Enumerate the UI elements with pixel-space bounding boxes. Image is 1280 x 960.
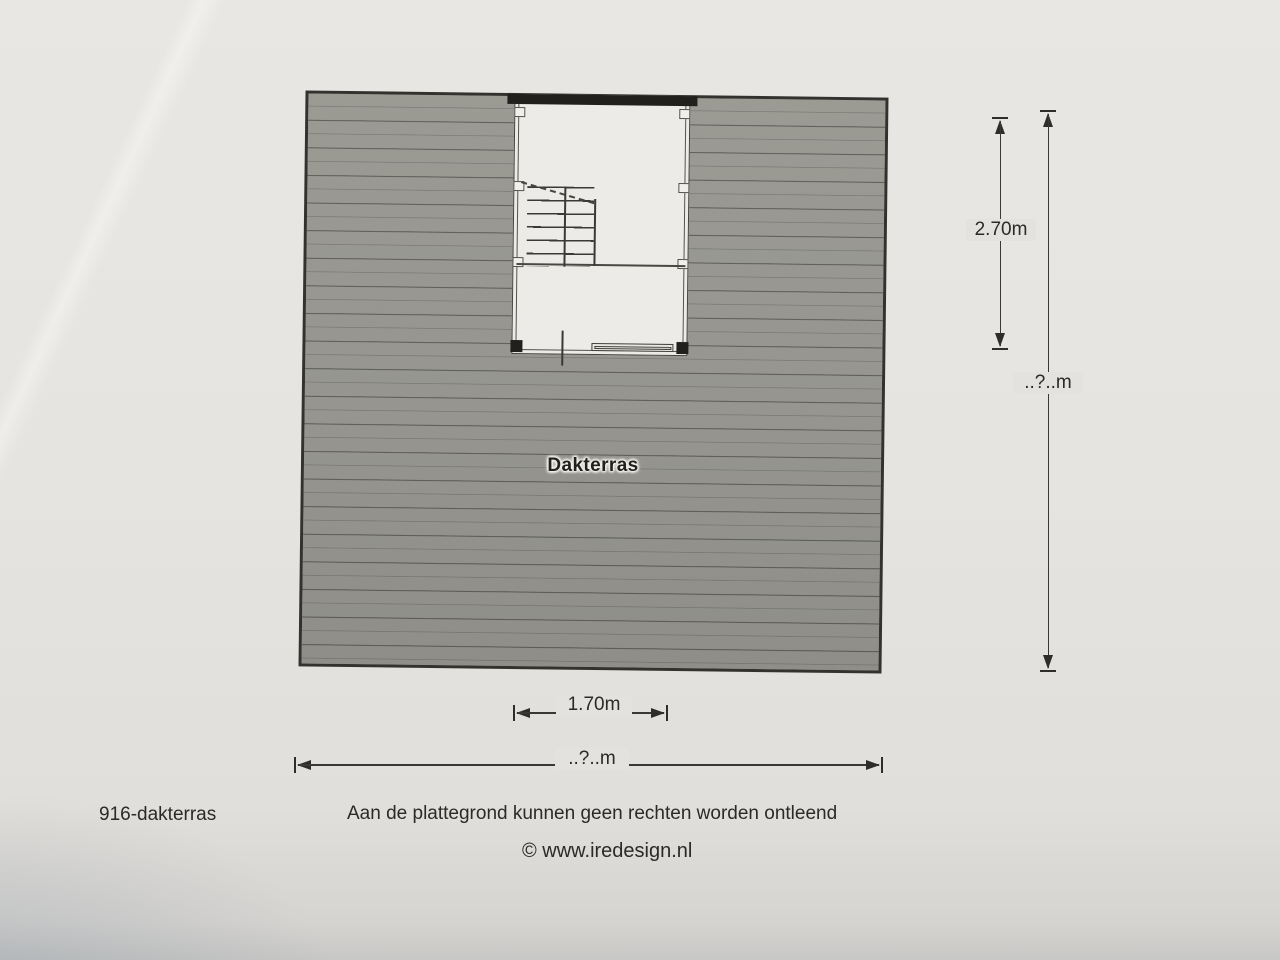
scanned-floorplan-page: Dakterras 2.70m ..?..m 1.70m ..?..m 916-… <box>0 0 1280 960</box>
staircase-treads <box>526 186 594 267</box>
dimension-value-terrace-width: ..?..m <box>555 748 629 770</box>
dimension-value-opening-width: 1.70m <box>556 694 632 716</box>
dimension-end-tick <box>294 757 296 773</box>
dimension-end-tick <box>513 705 515 721</box>
stairwell-opening <box>511 94 690 356</box>
wall-corner-block <box>510 340 522 352</box>
roof-terrace-deck <box>299 90 889 673</box>
entry-tick-mark <box>561 331 563 366</box>
dimension-value-terrace-depth: ..?..m <box>1013 372 1083 394</box>
wall-corner-block <box>676 342 688 354</box>
arrow-right-icon <box>651 708 665 718</box>
bottom-railing-segment <box>591 343 673 352</box>
bottom-railing-inner-line <box>594 346 671 350</box>
railing-post <box>679 109 690 119</box>
dimension-value-opening-depth: 2.70m <box>966 219 1036 241</box>
drawing-id: 916-dakterras <box>99 804 216 826</box>
disclaimer-text: Aan de plattegrond kunnen geen rechten w… <box>347 803 837 825</box>
railing-post <box>514 107 525 117</box>
railing-post <box>678 183 689 193</box>
dimension-end-tick <box>1040 670 1056 672</box>
arrow-right-icon <box>866 760 880 770</box>
arrow-down-icon <box>1043 655 1053 669</box>
dimension-end-tick <box>1040 110 1056 112</box>
dimension-end-tick <box>666 705 668 721</box>
dimension-end-tick <box>992 348 1008 350</box>
copyright-text: © www.iredesign.nl <box>522 840 692 863</box>
arrow-down-icon <box>995 333 1005 347</box>
dimension-end-tick <box>881 757 883 773</box>
railing-post <box>512 257 523 267</box>
dimension-end-tick <box>992 117 1008 119</box>
room-label-dakterras: Dakterras <box>503 455 683 477</box>
